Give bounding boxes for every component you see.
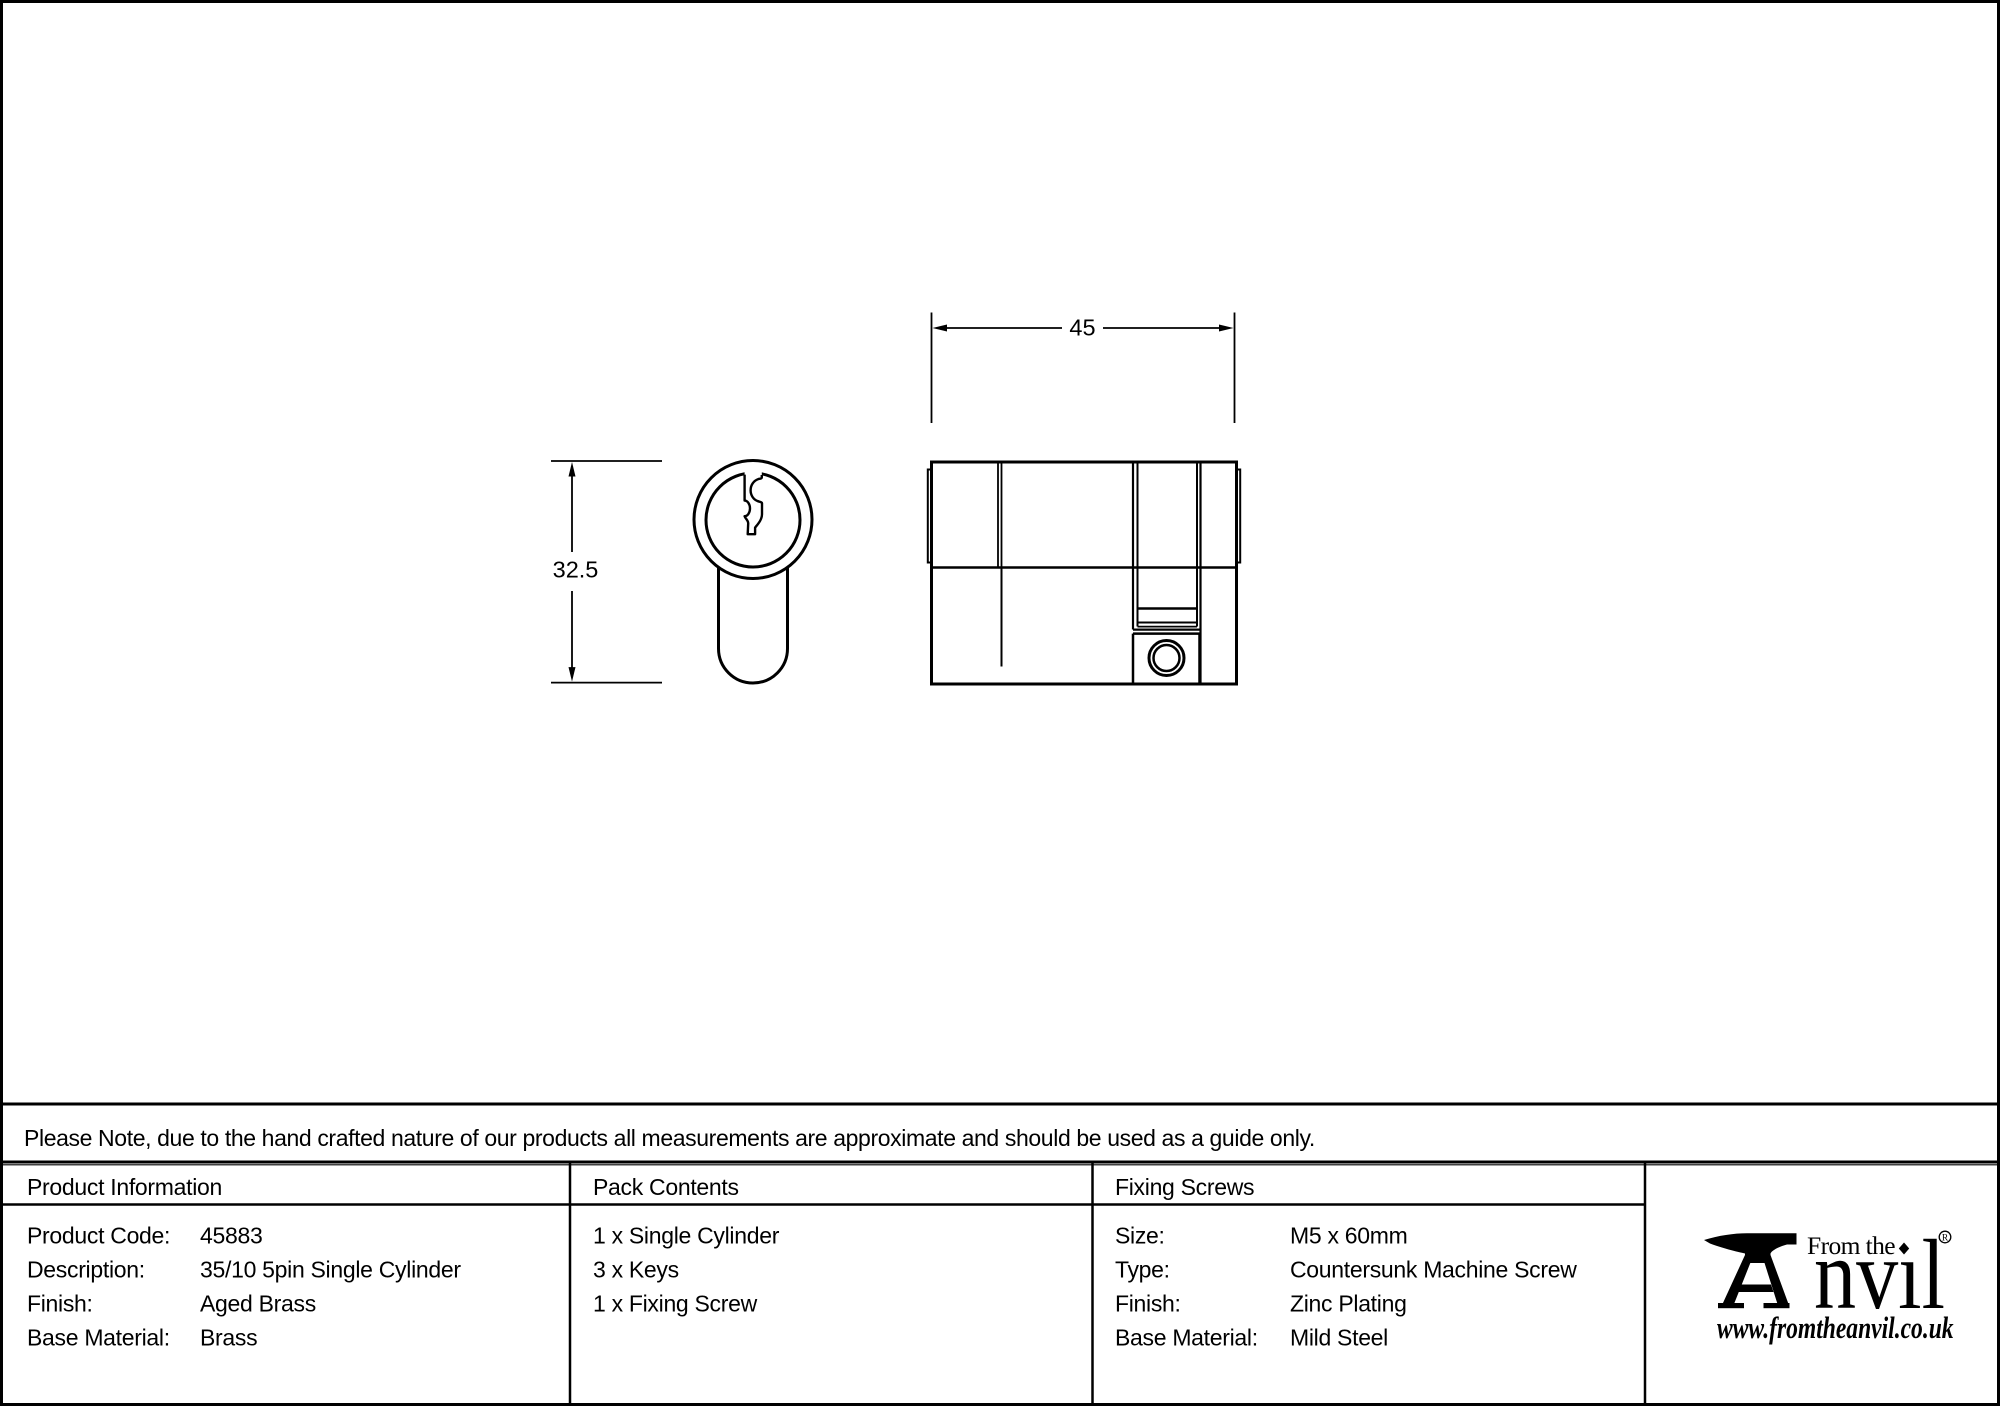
- svg-text:Zinc Plating: Zinc Plating: [1290, 1291, 1407, 1317]
- svg-text:Product Code:: Product Code:: [27, 1223, 170, 1249]
- svg-text:35/10 5pin Single Cylinder: 35/10 5pin Single Cylinder: [200, 1257, 461, 1283]
- svg-text:Base Material:: Base Material:: [1115, 1325, 1258, 1351]
- svg-text:Countersunk Machine Screw: Countersunk Machine Screw: [1290, 1257, 1577, 1283]
- svg-text:Finish:: Finish:: [1115, 1291, 1181, 1317]
- svg-text:www.fromtheanvil.co.uk: www.fromtheanvil.co.uk: [1717, 1310, 1954, 1345]
- svg-text:Size:: Size:: [1115, 1223, 1165, 1249]
- svg-text:45: 45: [1069, 315, 1095, 341]
- svg-text:Finish:: Finish:: [27, 1291, 93, 1317]
- svg-text:Mild Steel: Mild Steel: [1290, 1325, 1388, 1351]
- svg-text:Product Information: Product Information: [27, 1174, 222, 1200]
- svg-text:Description:: Description:: [27, 1257, 145, 1283]
- svg-text:M5 x 60mm: M5 x 60mm: [1290, 1223, 1407, 1249]
- svg-text:R: R: [1942, 1234, 1949, 1244]
- svg-text:Fixing Screws: Fixing Screws: [1115, 1174, 1254, 1200]
- svg-text:Type:: Type:: [1115, 1257, 1170, 1283]
- svg-text:45883: 45883: [200, 1223, 262, 1249]
- svg-text:3 x Keys: 3 x Keys: [593, 1257, 679, 1283]
- svg-text:Base Material:: Base Material:: [27, 1325, 170, 1351]
- svg-text:Pack Contents: Pack Contents: [593, 1174, 739, 1200]
- svg-text:Brass: Brass: [200, 1325, 257, 1351]
- svg-text:1 x Single Cylinder: 1 x Single Cylinder: [593, 1223, 780, 1249]
- svg-text:32.5: 32.5: [553, 557, 599, 583]
- svg-text:Please Note, due to the hand c: Please Note, due to the hand crafted nat…: [24, 1125, 1315, 1151]
- svg-text:1 x Fixing Screw: 1 x Fixing Screw: [593, 1291, 758, 1317]
- svg-text:Aged Brass: Aged Brass: [200, 1291, 316, 1317]
